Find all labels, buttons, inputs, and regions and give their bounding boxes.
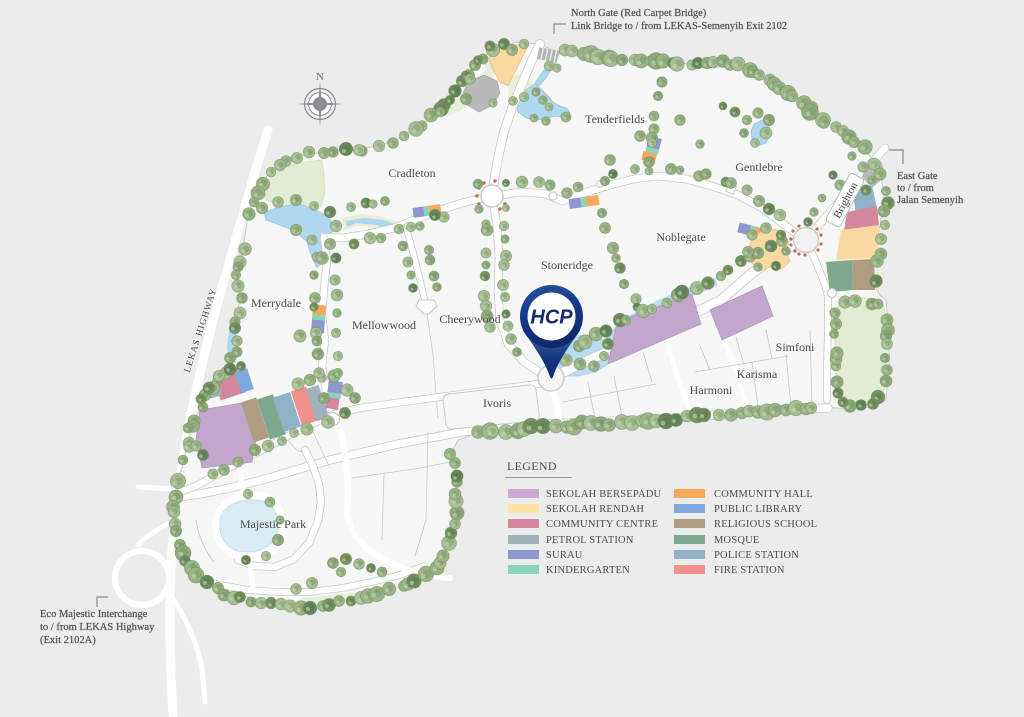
- svg-text:POLICE STATION: POLICE STATION: [714, 550, 799, 561]
- svg-text:MOSQUE: MOSQUE: [714, 535, 760, 546]
- svg-text:FIRE STATION: FIRE STATION: [714, 565, 785, 576]
- svg-text:KINDERGARTEN: KINDERGARTEN: [546, 565, 630, 576]
- svg-text:Merrydale: Merrydale: [251, 296, 301, 310]
- svg-text:SURAU: SURAU: [546, 550, 583, 561]
- svg-text:Mellowwood: Mellowwood: [352, 318, 416, 332]
- svg-text:Karisma: Karisma: [737, 367, 778, 381]
- svg-text:Stoneridge: Stoneridge: [541, 258, 593, 272]
- svg-text:LEGEND: LEGEND: [507, 459, 557, 473]
- svg-text:SEKOLAH BERSEPADU: SEKOLAH BERSEPADU: [546, 489, 662, 500]
- svg-text:Cradleton: Cradleton: [388, 166, 435, 180]
- svg-text:N: N: [316, 71, 324, 83]
- svg-text:Simfoni: Simfoni: [776, 340, 815, 354]
- svg-text:Ivoris: Ivoris: [483, 396, 511, 410]
- svg-text:Majestic Park: Majestic Park: [240, 517, 306, 531]
- svg-text:to / from LEKAS Highway: to / from LEKAS Highway: [40, 622, 155, 633]
- svg-text:North Gate (Red Carpet Bridge): North Gate (Red Carpet Bridge): [571, 8, 707, 19]
- svg-text:(Exit 2102A): (Exit 2102A): [40, 635, 96, 646]
- svg-text:to / from: to / from: [897, 183, 934, 194]
- svg-text:COMMUNITY CENTRE: COMMUNITY CENTRE: [546, 519, 658, 530]
- svg-text:COMMUNITY HALL: COMMUNITY HALL: [714, 489, 813, 500]
- svg-text:RELIGIOUS SCHOOL: RELIGIOUS SCHOOL: [714, 519, 817, 530]
- svg-text:Cheerywood: Cheerywood: [439, 312, 500, 326]
- svg-text:Tenderfields: Tenderfields: [585, 112, 645, 126]
- svg-text:Harmoni: Harmoni: [690, 383, 733, 397]
- svg-text:Eco Majestic Interchange: Eco Majestic Interchange: [40, 609, 148, 620]
- svg-text:SEKOLAH RENDAH: SEKOLAH RENDAH: [546, 504, 644, 515]
- svg-text:PETROL STATION: PETROL STATION: [546, 535, 634, 546]
- svg-text:Jalan Semenyih: Jalan Semenyih: [897, 195, 964, 206]
- svg-text:Gentlebre: Gentlebre: [735, 160, 782, 174]
- svg-text:Link Bridge to / from LEKAS-Se: Link Bridge to / from LEKAS-Semenyih Exi…: [571, 21, 787, 32]
- svg-text:Noblegate: Noblegate: [656, 230, 705, 244]
- svg-text:HCP: HCP: [530, 307, 573, 329]
- svg-text:East Gate: East Gate: [897, 171, 938, 182]
- svg-text:PUBLIC LIBRARY: PUBLIC LIBRARY: [714, 504, 802, 515]
